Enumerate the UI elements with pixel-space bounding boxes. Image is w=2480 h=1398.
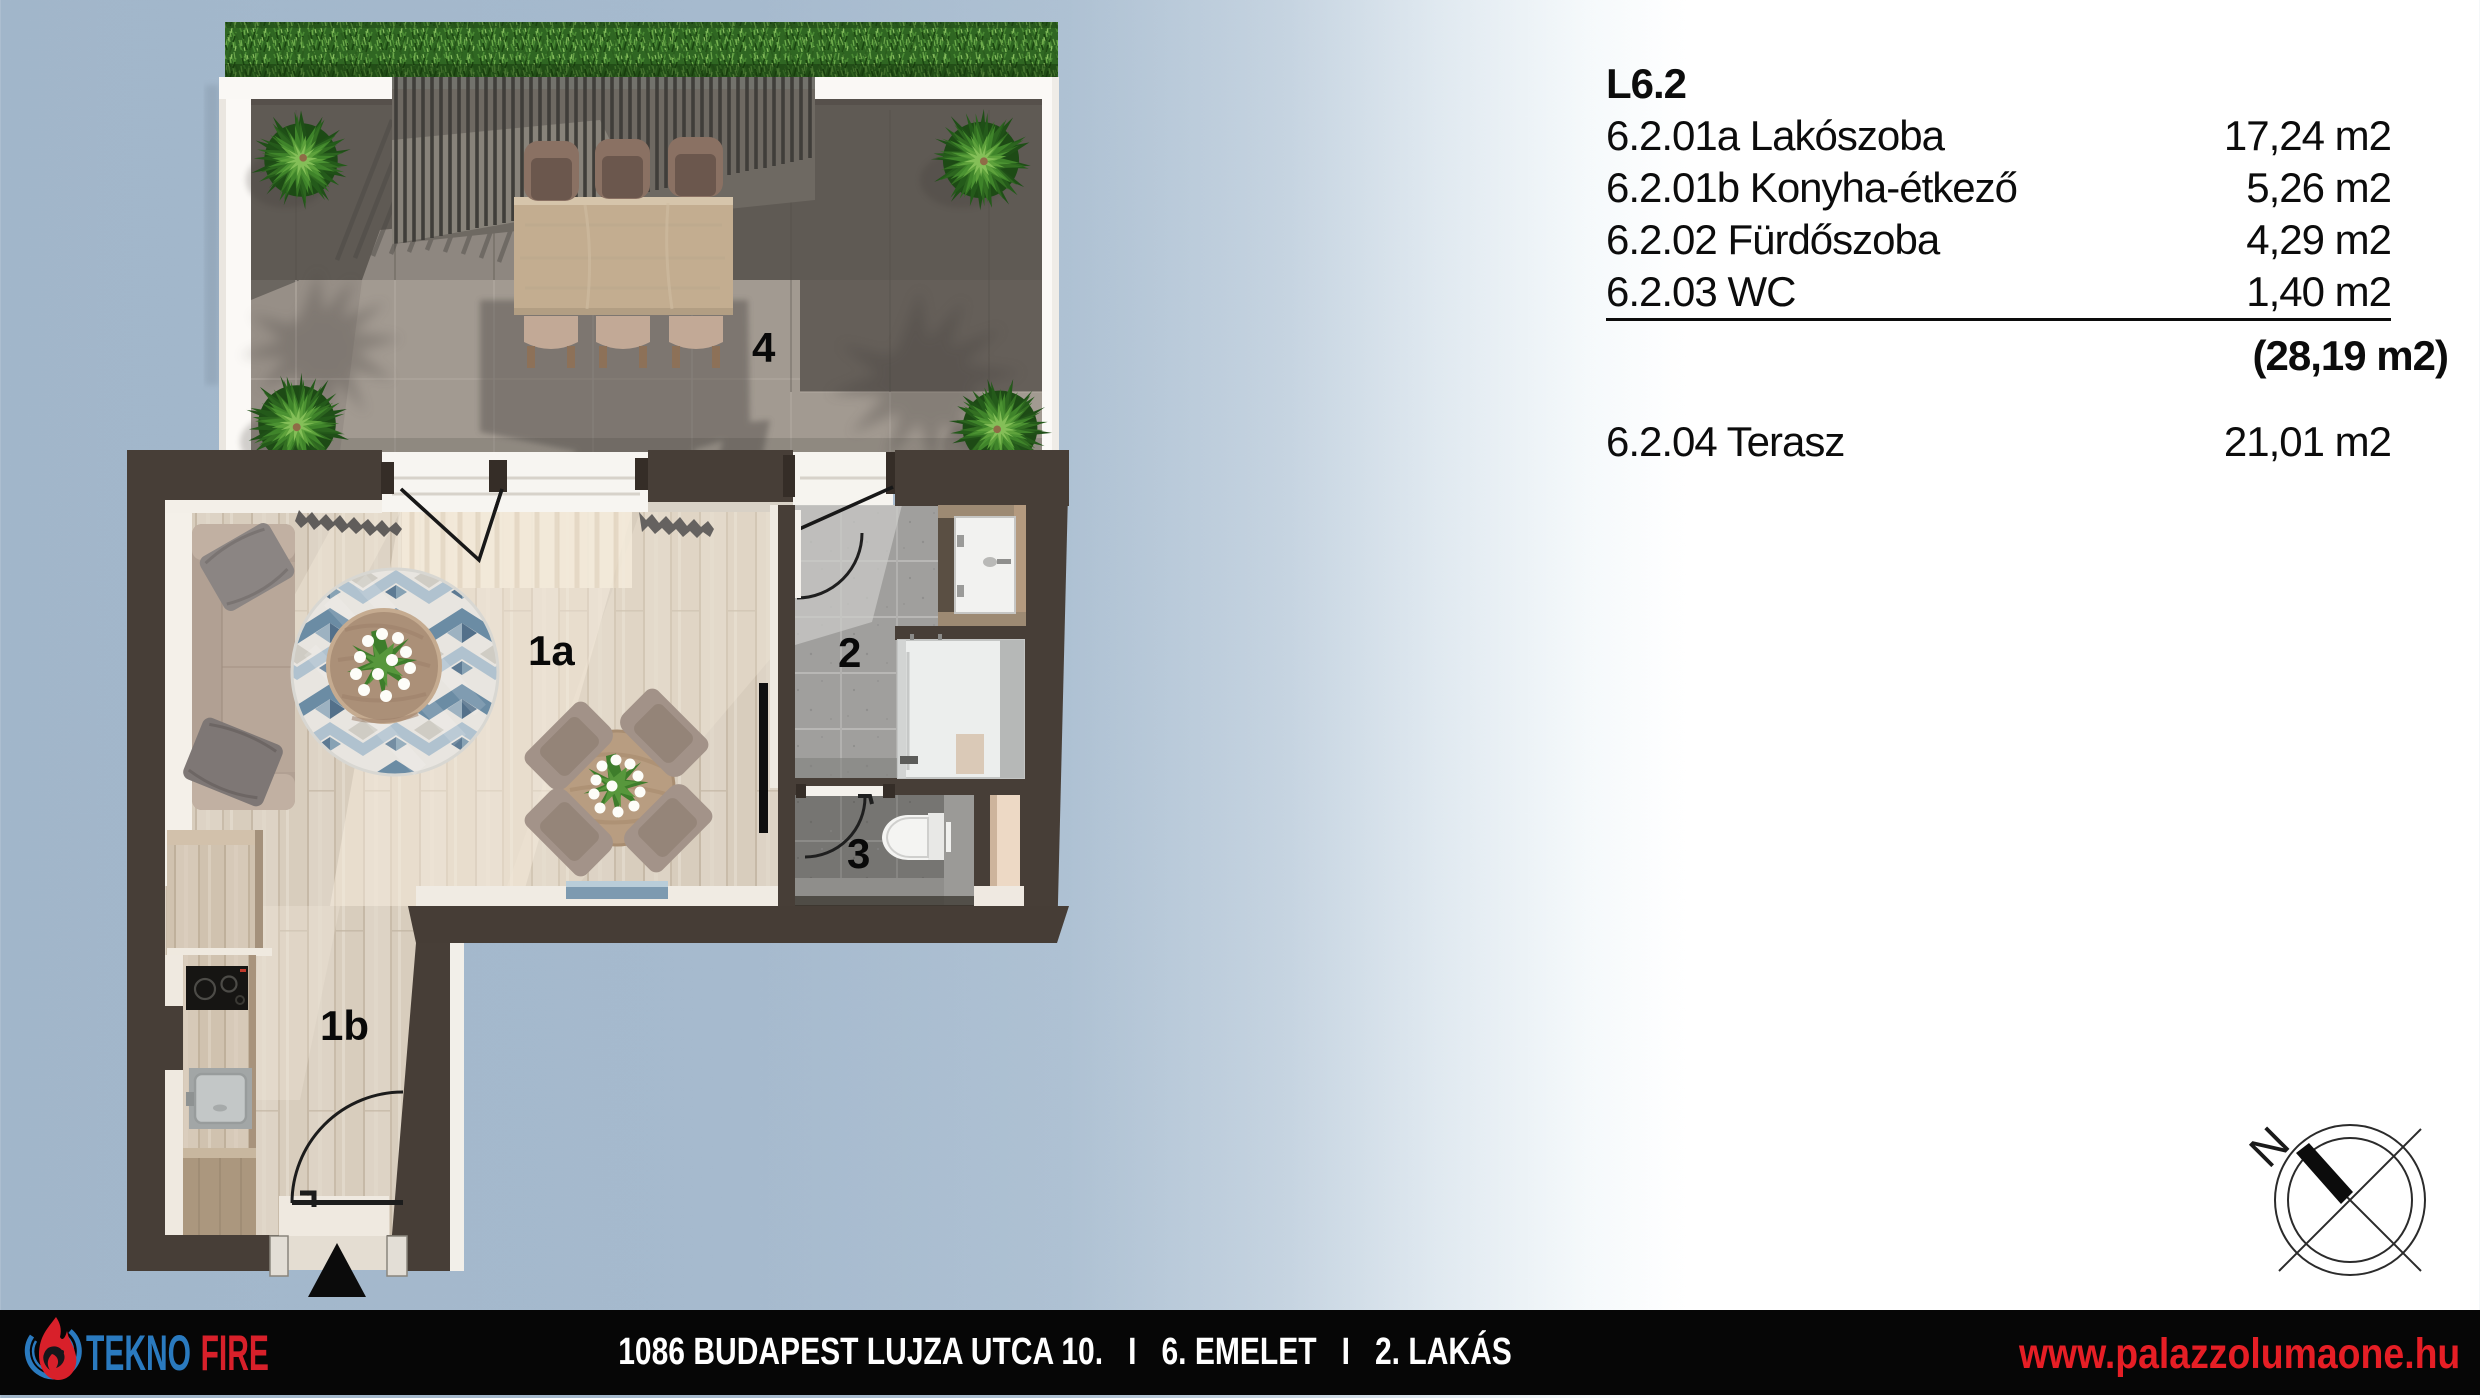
svg-text:N: N	[2239, 1116, 2299, 1176]
svg-text:2: 2	[838, 629, 861, 676]
svg-text:1b: 1b	[320, 1002, 369, 1049]
svg-text:3: 3	[847, 830, 870, 877]
svg-text:4: 4	[752, 324, 776, 371]
svg-text:1a: 1a	[528, 627, 575, 674]
